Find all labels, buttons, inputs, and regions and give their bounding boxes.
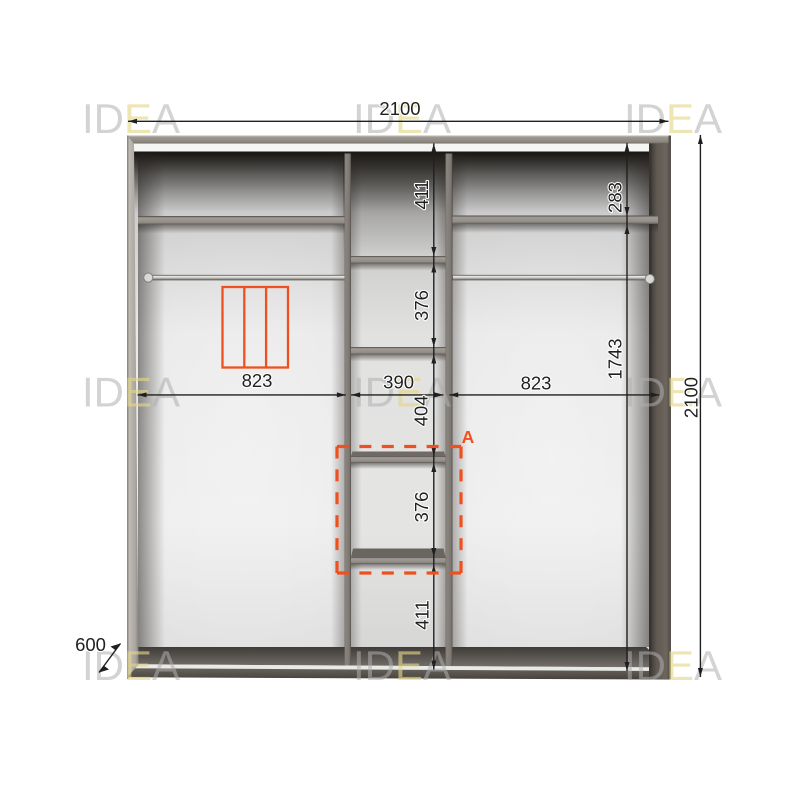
svg-text:411: 411: [411, 180, 432, 210]
svg-text:IDEA: IDEA: [353, 642, 451, 689]
svg-text:2100: 2100: [680, 377, 701, 418]
svg-text:1743: 1743: [605, 338, 626, 379]
svg-text:376: 376: [411, 290, 432, 321]
svg-text:IDEA: IDEA: [82, 369, 180, 416]
svg-text:411: 411: [412, 600, 433, 630]
svg-text:600: 600: [75, 634, 106, 655]
svg-text:IDEA: IDEA: [82, 95, 180, 142]
svg-text:390: 390: [383, 372, 414, 393]
svg-text:2100: 2100: [379, 98, 420, 119]
svg-text:283: 283: [605, 182, 626, 213]
svg-text:IDEA: IDEA: [624, 369, 722, 416]
svg-text:IDEA: IDEA: [624, 95, 722, 142]
svg-text:823: 823: [242, 370, 273, 391]
svg-text:A: A: [462, 427, 475, 447]
svg-text:IDEA: IDEA: [624, 642, 722, 689]
svg-text:404: 404: [411, 395, 432, 426]
svg-text:823: 823: [521, 373, 552, 394]
svg-text:376: 376: [411, 492, 432, 523]
